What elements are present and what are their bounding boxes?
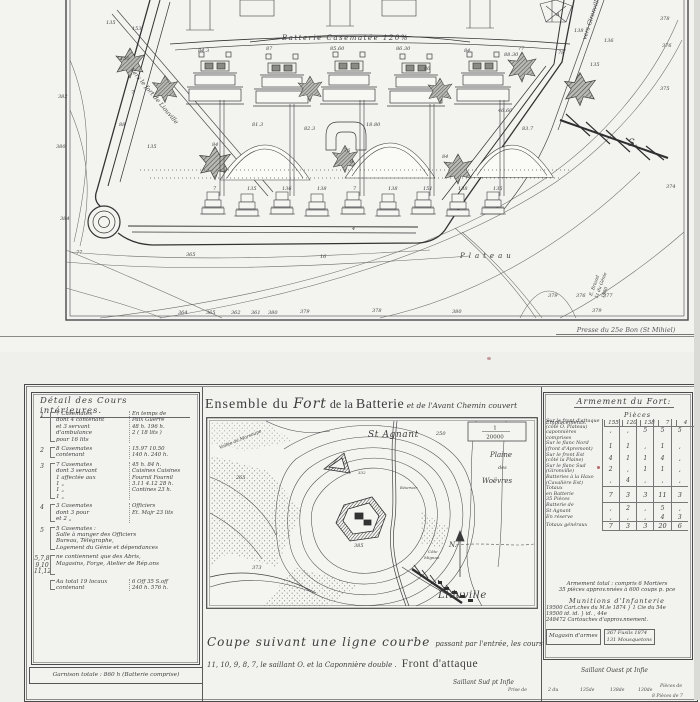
plan-number-label: 88.30: [504, 52, 519, 58]
plan-number-label: A: [555, 12, 560, 18]
row-brace: [50, 504, 55, 521]
plan-number-label: 16: [320, 254, 327, 260]
armament-notes: Armement total : compris 6 Mortiers35 pi…: [546, 581, 688, 594]
scan-edge-shadow: [694, 0, 700, 700]
row-number: 3: [34, 462, 50, 500]
left-table-row: 43 Casematesdont 3 pouret 2 „OfficiersEt…: [34, 503, 194, 522]
plan-number-label: 86: [424, 66, 431, 72]
map-label: Mignon: [423, 555, 440, 560]
map-label: 373: [252, 565, 262, 571]
plan-number-label: 380: [268, 310, 278, 316]
plan-number-label: 375: [660, 86, 670, 92]
pieces-header: Pièces: [624, 411, 651, 419]
armament-cell: ,: [671, 453, 688, 464]
armament-cell: 4: [653, 514, 670, 521]
title-part: Ensemble du: [205, 397, 293, 412]
plan-number-label: 135: [493, 186, 503, 192]
plan-number-label: 151: [423, 186, 433, 192]
caption-line2: 11, 10, 9, 8, 7, le saillant O. et la Ca…: [207, 661, 397, 669]
row-values: En temps dePaix Guerre48 h. 196 h.2 ( 18…: [129, 411, 194, 443]
left-table-row: 5,7,89,1011,12ne contiennent que des Abr…: [34, 554, 194, 576]
armament-cell: 3: [619, 486, 636, 503]
row-brace: [50, 580, 55, 591]
map-label: N.: [448, 541, 457, 549]
munitions-line: 248472 Cartouches d'approv.nnement.: [546, 617, 688, 623]
armament-row-label: En réserve: [546, 515, 602, 521]
map-label: St Agnant: [368, 430, 419, 440]
row-number: 4: [34, 503, 50, 522]
svg-text:1: 1: [493, 426, 497, 432]
row-brace: [50, 555, 55, 575]
title-part: et de l'Avant Chemin couvert: [404, 401, 517, 410]
armament-cell: 3: [636, 521, 653, 531]
plan-number-label: 379: [548, 293, 558, 299]
section-caption: Coupe suivant une ligne courbe passant p…: [207, 631, 567, 671]
armament-row-label: Batterie deSt Agnant: [546, 503, 602, 514]
plan-number-label: 379: [592, 308, 602, 314]
armament-cell: 7: [602, 486, 619, 503]
plan-number-label: 81.3: [252, 122, 263, 128]
armament-cell: 20: [653, 521, 670, 531]
center-column: Ensemble du Fort de la Batterie et de l'…: [202, 387, 542, 701]
armament-row-label: Sur le front d'attaque(côté O. Plateau)c…: [546, 419, 602, 441]
armament-cell: 1: [653, 441, 670, 452]
map-label: Réservoir: [399, 486, 417, 490]
armament-cell: 7: [602, 521, 619, 531]
bottom-fragment-label: Pièces de: [660, 684, 682, 689]
scanned-fort-document: { "imprint": "Presse du 25e Bon (St Mihi…: [0, 0, 700, 700]
title-part: Fort: [293, 396, 327, 412]
plan-number-label: 379: [300, 309, 310, 315]
armament-row: Sur le flanc Nord(front d'Apremont)11,1,: [546, 441, 688, 452]
left-table-row: 37 Casematesdont 3 servant1 affectée aux…: [34, 462, 194, 500]
left-table-row: 55 Casemates :Salle à manger des Officie…: [34, 526, 194, 552]
magasin-contents: 367 Fusils 1874131 Mousquetons: [604, 629, 655, 645]
row-number: [34, 579, 50, 592]
plan-number-label: 378: [660, 16, 670, 22]
bottom-fragment-label: 8 Pièces de 7: [652, 694, 683, 699]
situation-map: 1 20000 St Agnant250PlainedesWoëvresN.Li…: [206, 417, 538, 613]
plan-number-label: 135: [106, 20, 116, 26]
plan-number-label: 84: [212, 142, 218, 148]
armament-note: 35 pièces approv.nnées à 600 coups p. pc…: [546, 587, 688, 593]
row-values: 15.97 10.50140 h. 240 h.: [129, 446, 194, 459]
map-label: 385: [354, 543, 364, 549]
armament-cell: ,: [619, 419, 636, 441]
armament-cell: 3: [671, 514, 688, 521]
row-description: Au total 19 locauxcontenant: [56, 579, 129, 592]
plan-number-label: 374: [666, 184, 676, 190]
plan-number-label: 78: [558, 50, 564, 56]
plan-number-label: 83.7: [522, 126, 534, 132]
row-description: 7 Casematesdont 3 servant1 affectée aux1…: [56, 462, 129, 500]
armament-cell: 1: [619, 453, 636, 464]
armament-cell: ,: [602, 419, 619, 441]
scan-speck: [487, 357, 491, 360]
magasin-line: 131 Mousquetons: [607, 637, 652, 644]
bottom-fragment-label: 130de: [638, 688, 652, 693]
armament-title: Armement du Fort:: [574, 397, 674, 408]
row-brace: [50, 463, 55, 499]
page-title: Ensemble du Fort de la Batterie et de l'…: [205, 393, 539, 413]
row-number: 2: [34, 446, 50, 459]
armament-cell: ,: [671, 441, 688, 452]
plan-number-label: 82.3: [304, 126, 315, 132]
armament-cell: ,: [636, 475, 653, 486]
armament-rows: Sur le front d'attaque(côté O. Plateau)c…: [546, 419, 688, 531]
plan-number-label: 85.60: [330, 46, 345, 52]
plan-number-label: 77: [518, 46, 525, 52]
plan-number-label: 376: [662, 43, 672, 49]
armament-cell: ,: [653, 475, 670, 486]
plan-number-label: 18.80: [366, 122, 381, 128]
left-table-rows: 17 Casematesdont 4 contenantet 3 servant…: [34, 411, 194, 594]
armament-cell: 1: [619, 441, 636, 452]
map-label: Côte: [428, 549, 438, 554]
caption-front: Front d'attaque: [402, 658, 478, 670]
armament-row: Sur le front d'attaque(côté O. Plateau)c…: [546, 419, 688, 441]
map-label: des: [498, 465, 507, 471]
plan-number-label: 136: [604, 38, 614, 44]
plan-number-label: 88: [119, 122, 125, 128]
bottom-fragment-label: 2 du: [548, 688, 558, 693]
armament-cell: 3: [636, 486, 653, 503]
plan-number-label: 378: [372, 308, 382, 314]
armament-cell: ,: [671, 503, 688, 514]
armament-cell: ,: [602, 503, 619, 514]
armament-cell: 3: [619, 521, 636, 531]
armament-cell: 1: [602, 441, 619, 452]
armament-row-label: Totauxen Batterie35 Pièces: [546, 486, 602, 503]
row-values: OfficiersEt. Majr 23 lits: [129, 503, 194, 522]
plan-number-label: 138: [317, 186, 327, 192]
magasin-label: Magasin d'armes: [546, 629, 601, 645]
title-part: de la: [327, 397, 356, 411]
armament-cell: 1: [636, 464, 653, 475]
plan-number-label: 138: [574, 28, 584, 34]
plan-number-label: 377: [603, 293, 613, 299]
plan-number-label: 138: [458, 186, 468, 192]
plan-number-label: 135: [247, 186, 257, 192]
row-number: 5,7,89,1011,12: [34, 554, 50, 576]
plan-number-label: 87: [266, 46, 273, 52]
plan-plateau-label: Plateau: [459, 252, 515, 260]
munitions-block: Munitions d'Infanterie 19500 Cart.ches d…: [546, 597, 688, 624]
bottom-fragment-label: 138de: [610, 688, 624, 693]
armament-cell: 1: [653, 464, 670, 475]
armament-cell: 5: [653, 503, 670, 514]
plan-number-label: 84: [464, 48, 470, 54]
armament-table: Armement du Fort: Pièces Emplacements. 1…: [543, 392, 693, 660]
bottom-fragment-label: Prise de: [508, 688, 527, 693]
printer-imprint: Presse du 25e Bon (St Mihiel): [556, 326, 696, 335]
armament-cell: 2: [619, 503, 636, 514]
saillant-sud-label: Saillant Sud pt Infie: [453, 679, 514, 686]
plan-number-label: 376: [576, 293, 586, 299]
row-values: 45 h. 84 h.Cuisines CuisinesFournil Four…: [129, 462, 194, 500]
armament-cell: ,: [619, 464, 636, 475]
row-number: 5: [34, 526, 50, 552]
plan-number-label: 380: [452, 309, 462, 315]
title-part: Batterie: [356, 397, 404, 412]
map-label: Liouville: [437, 590, 487, 601]
armament-row: Totauxen Batterie35 Pièces733113: [546, 486, 688, 503]
left-table-row: 28 Casematescontenant15.97 10.50140 h. 2…: [34, 446, 194, 459]
plan-number-label: 135: [590, 62, 600, 68]
row-brace: [50, 447, 55, 458]
armament-cell: ,: [636, 514, 653, 521]
plan-number-label: 153: [132, 26, 142, 32]
armament-row: Totaux généraux733206: [546, 521, 688, 531]
plan-number-label: 382: [58, 94, 68, 100]
row-brace: [50, 412, 55, 442]
saillant-ouest-label: Saillant Ouest pt Infie: [581, 667, 648, 674]
plan-number-label: 77: [76, 250, 83, 256]
row-description: 7 Casematesdont 4 contenantet 3 servantd…: [56, 411, 129, 443]
caption-big: Coupe suivant une ligne courbe: [207, 635, 430, 649]
plan-number-label: 46.60: [497, 108, 513, 114]
map-label: Woëvres: [482, 477, 513, 485]
armament-cell: 6: [671, 521, 688, 531]
armament-cell: 11: [653, 486, 670, 503]
plan-top-label: Batterie Casematée 120%: [281, 34, 409, 42]
row-brace: [50, 527, 55, 551]
plan-number-label: 365: [186, 252, 196, 258]
plan-number-label: 135: [147, 144, 157, 150]
bottom-fragment-label: 135de: [580, 688, 594, 693]
fort-plan-drawing: Batterie Casematée 120% Vers le fort de …: [0, 0, 700, 352]
plan-number-label: 361: [251, 310, 261, 316]
armament-row-label: Totaux généraux: [546, 523, 602, 529]
row-values: 6 Off 35 S.off240 h. 576 h.: [129, 579, 194, 592]
row-description: 8 Casematescontenant: [56, 446, 129, 459]
bottom-sheet: Détail des Cours intérieures. 17 Casemat…: [24, 384, 698, 702]
plan-south-label: S.: [628, 138, 638, 149]
magasin-armes: Magasin d'armes 367 Fusils 1874131 Mousq…: [546, 629, 688, 645]
row-description: 3 Casematesdont 3 pouret 2 „: [56, 503, 129, 522]
armament-row: Batteries à la Haxo(Cavalière Est),4,,,: [546, 475, 688, 486]
armament-cell: ,: [602, 475, 619, 486]
plan-number-label: 84.3: [198, 48, 209, 54]
scan-speck: [597, 466, 600, 469]
armament-cell: 4: [653, 453, 670, 464]
armament-cell: 5: [671, 419, 688, 441]
armament-row: En réserve,,,43: [546, 514, 688, 521]
plan-number-label: 150: [120, 56, 130, 62]
magasin-line: 367 Fusils 1874: [607, 630, 652, 637]
armament-cell: ,: [602, 514, 619, 521]
armament-cell: ,: [671, 464, 688, 475]
map-scale: 1 20000: [468, 422, 526, 441]
plan-number-label: 365: [206, 310, 216, 316]
plan-number-label: 138: [388, 186, 398, 192]
armament-cell: 3: [671, 486, 688, 503]
armament-cell: 4: [602, 453, 619, 464]
garrison-total: Garnison totale : 860 h (Batterie compri…: [29, 667, 203, 684]
plan-number-label: 86.30: [396, 46, 411, 52]
interior-rooms-table: Détail des Cours intérieures. 17 Casemat…: [31, 392, 200, 665]
row-number: 1: [34, 411, 50, 443]
armament-row: Batterie deSt Agnant,2,5,: [546, 503, 688, 514]
map-label: 265: [235, 475, 246, 481]
row-description: 5 Casemates :Salle à manger des Officier…: [56, 526, 194, 552]
munitions-title: Munitions d'Infanterie: [546, 597, 688, 605]
plan-number-label: 84: [442, 154, 448, 160]
armament-cell: 4: [619, 475, 636, 486]
left-table-row: 17 Casematesdont 4 contenantet 3 servant…: [34, 411, 194, 443]
armament-cell: 5: [636, 419, 653, 441]
armament-cell: ,: [619, 514, 636, 521]
map-label: 250: [435, 431, 446, 437]
caption-small: passant par l'entrée, les cours: [435, 640, 542, 648]
armament-cell: 5: [653, 419, 670, 441]
svg-text:20000: 20000: [486, 435, 504, 441]
map-label: 332: [358, 470, 366, 475]
plan-number-label: 76: [344, 148, 351, 154]
plan-number-label: 384: [60, 216, 70, 222]
plan-number-label: 380: [56, 144, 66, 150]
armament-row-label: Sur le flanc Nord(front d'Apremont): [546, 441, 602, 452]
armament-cell: 1: [636, 453, 653, 464]
row-description: ne contiennent que des Abris,Magasins, F…: [56, 554, 194, 576]
plan-number-label: 4: [351, 226, 355, 232]
map-label: Plaine: [489, 451, 512, 459]
armament-cell: ,: [671, 475, 688, 486]
plan-number-label: 362: [231, 310, 241, 316]
armament-cell: ,: [636, 503, 653, 514]
sheet-divider: [0, 336, 694, 337]
armament-cell: 2: [602, 464, 619, 475]
left-table-row: Au total 19 locauxcontenant6 Off 35 S.of…: [34, 579, 194, 592]
plan-number-label: 136: [282, 186, 292, 192]
plan-number-label: 364: [178, 310, 188, 316]
armament-cell: ,: [636, 441, 653, 452]
